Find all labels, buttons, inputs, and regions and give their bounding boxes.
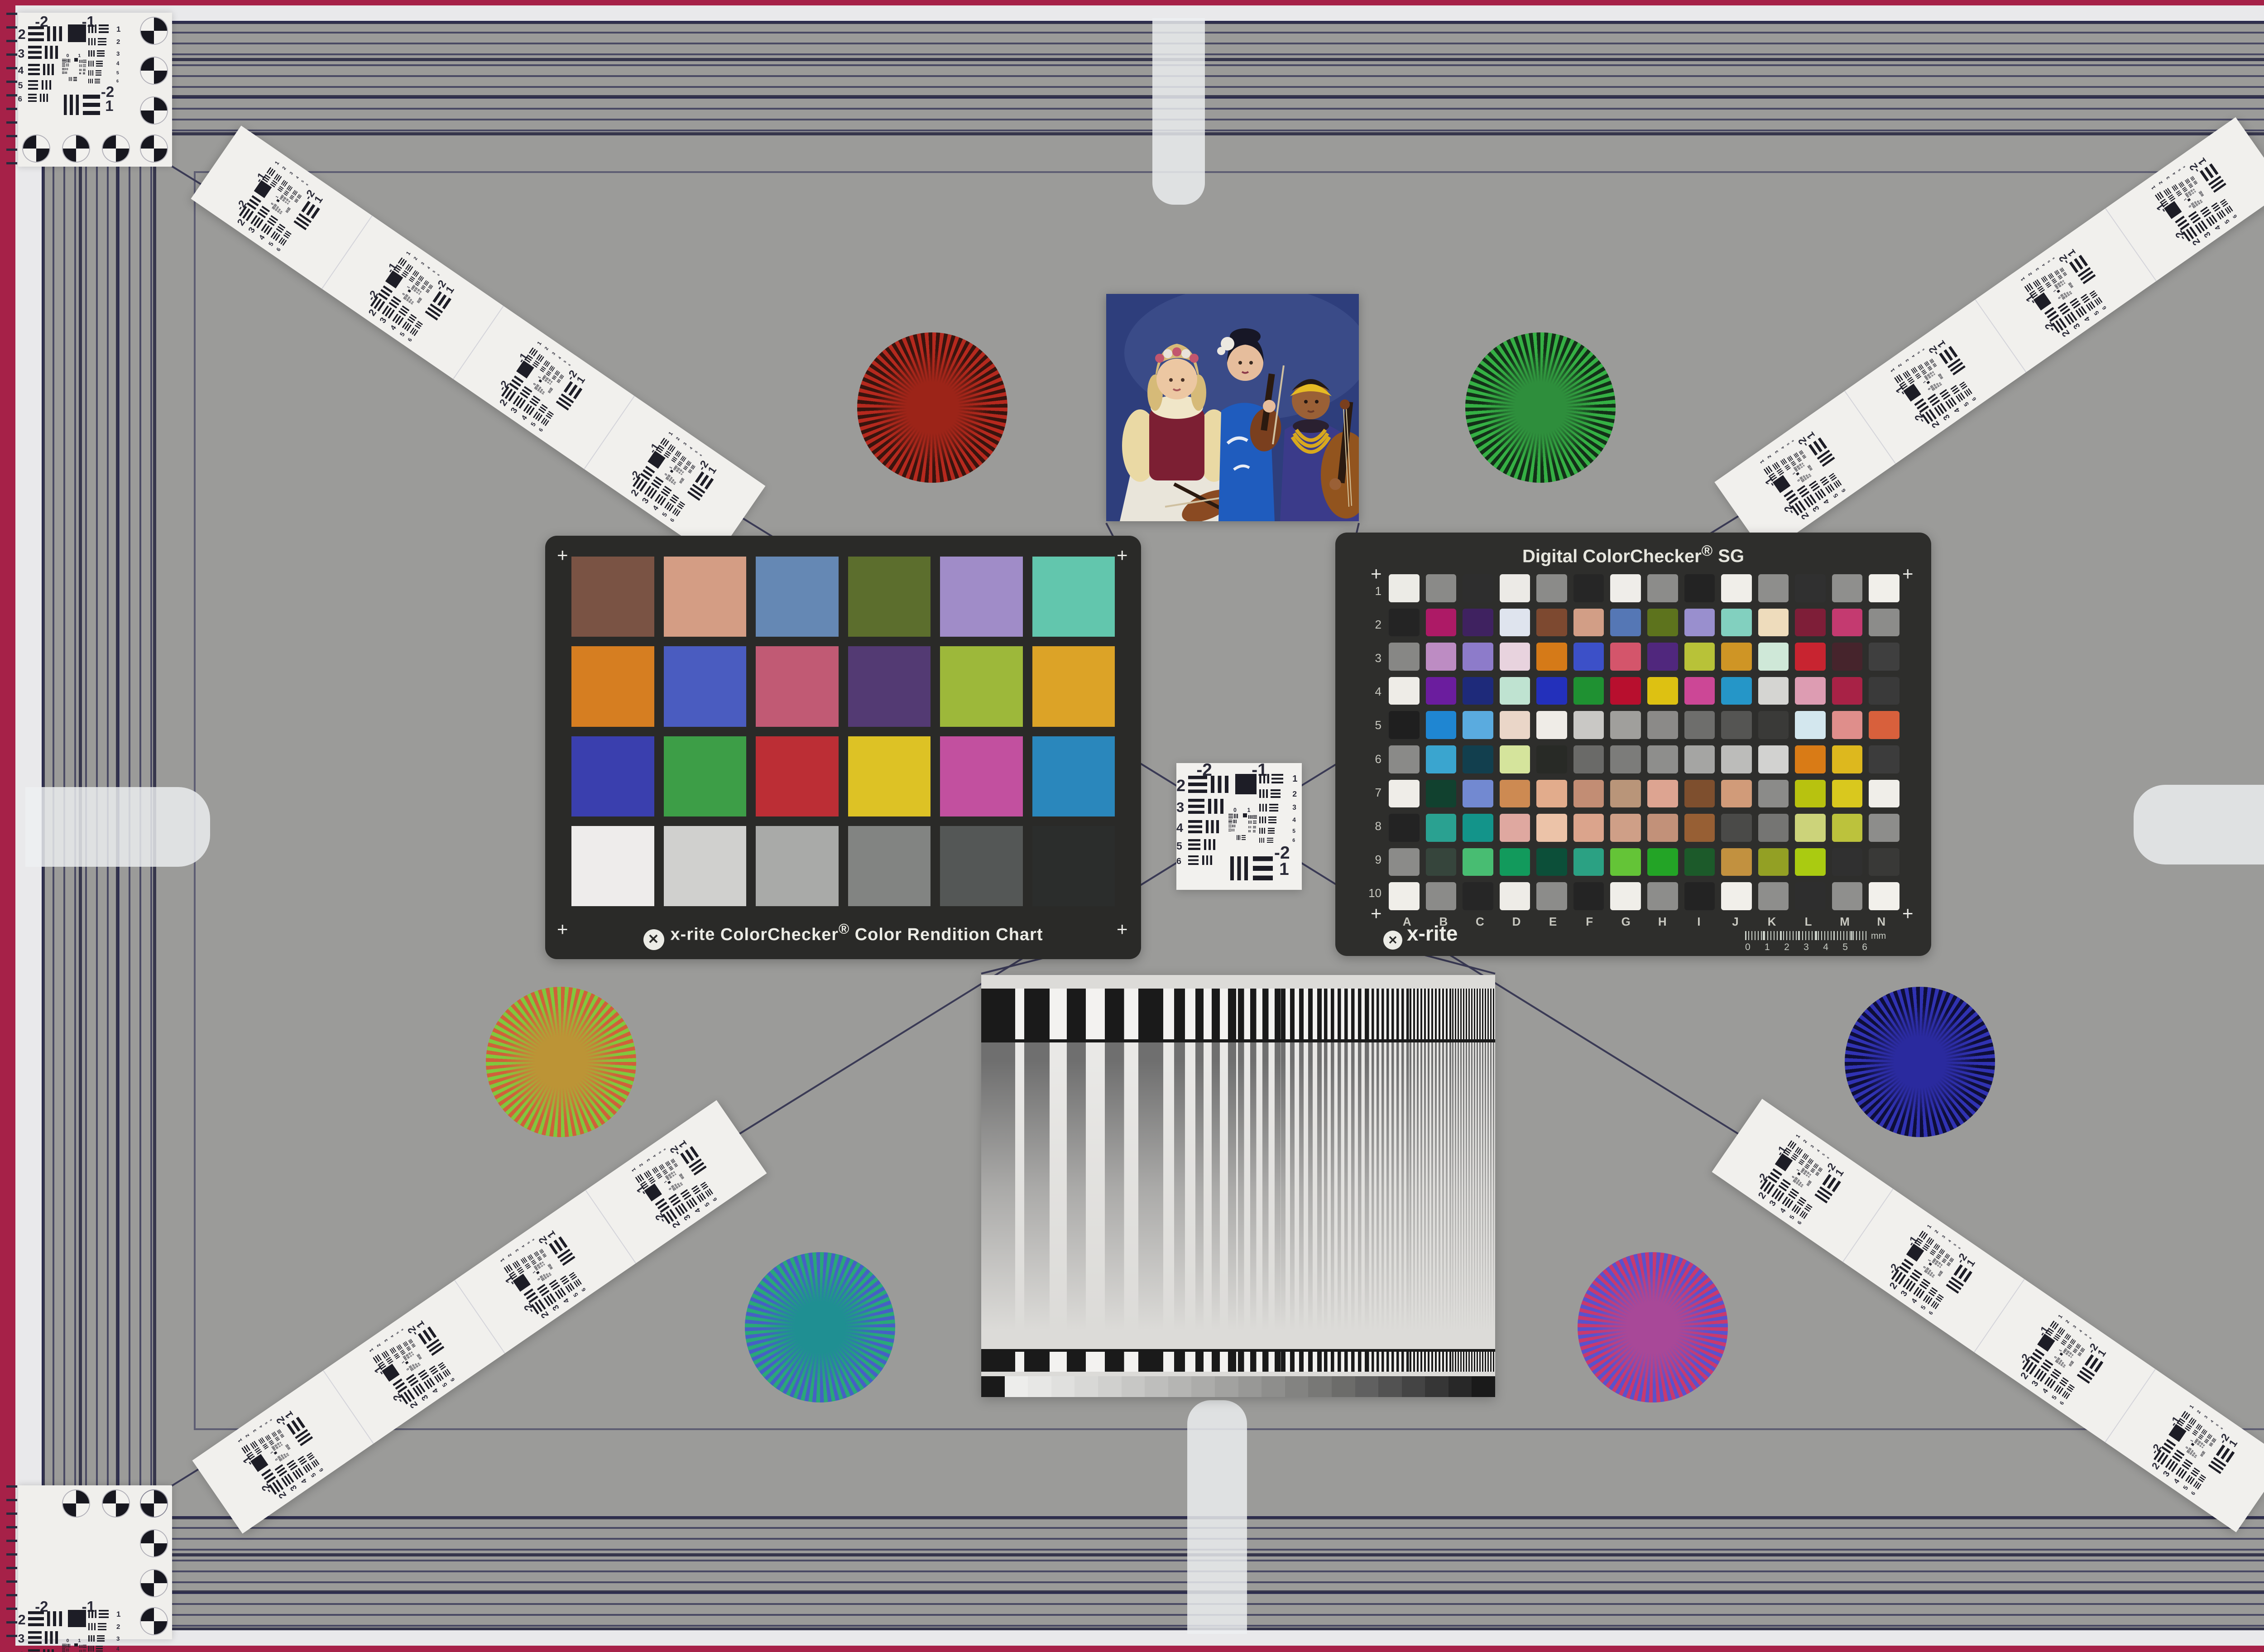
gray-step xyxy=(1238,1376,1262,1397)
usaf-bar-group xyxy=(1259,838,1265,843)
usaf-bar-group xyxy=(2211,1438,2216,1443)
usaf-bar-group xyxy=(538,404,548,413)
fiducial-circle-icon xyxy=(141,58,167,84)
usaf-label: 2 xyxy=(1803,1139,1808,1144)
gray-step xyxy=(1005,1376,1028,1397)
gray-step xyxy=(1285,1376,1309,1397)
usaf-bar-group xyxy=(551,381,552,383)
usaf-square xyxy=(1926,381,1929,384)
sg-patch xyxy=(1536,814,1567,842)
usaf-bar-group xyxy=(276,223,285,233)
usaf-bar-group xyxy=(1809,1173,1811,1176)
usaf-label: 1 xyxy=(1935,339,1947,350)
usaf-bar-group xyxy=(2190,190,2192,192)
usaf-label: 5 xyxy=(310,1472,317,1478)
usaf-bar-group xyxy=(1927,366,1932,371)
usaf-bar-group xyxy=(2178,182,2184,188)
usaf-label: 0 xyxy=(1927,387,1931,391)
sg-patch xyxy=(1684,848,1715,876)
usaf-bar-group xyxy=(28,1631,42,1644)
sg-patch xyxy=(1647,745,1678,773)
sg-row-label: 9 xyxy=(1359,843,1381,877)
usaf-label: 1 xyxy=(1292,774,1297,783)
usaf-bar-group xyxy=(1926,1237,1934,1245)
usaf-bar-group xyxy=(257,206,270,218)
usaf-bar-group xyxy=(1188,820,1202,833)
usaf-bar-group xyxy=(274,1464,287,1477)
usaf-bar-group xyxy=(266,167,275,176)
usaf-bar-group xyxy=(287,1454,289,1456)
usaf-square xyxy=(1775,1153,1793,1171)
usaf-bar-group xyxy=(2182,187,2188,192)
sg-patch xyxy=(1758,609,1789,637)
usaf-bar-group xyxy=(1228,814,1233,818)
sg-patch xyxy=(1573,643,1604,671)
sg-patch xyxy=(1610,745,1641,773)
sg-patch xyxy=(1426,711,1457,739)
usaf-bar-group xyxy=(283,190,289,196)
usaf-label: 6 xyxy=(2059,1400,2065,1406)
usaf-bar-group xyxy=(1903,1278,1916,1292)
usaf-label: 3 xyxy=(420,1393,430,1402)
sg-patch xyxy=(1610,780,1641,808)
usaf-bar-group xyxy=(438,1362,446,1370)
usaf-bar-group xyxy=(88,24,97,33)
sg-patch xyxy=(1721,711,1752,739)
usaf-bar-group xyxy=(532,360,540,368)
usaf-bar-group xyxy=(1929,1249,1936,1255)
usaf-bar-group xyxy=(286,199,288,201)
usaf-bar-group xyxy=(664,502,674,512)
usaf-label: 1 xyxy=(1759,459,1765,465)
sg-patch xyxy=(1647,848,1678,876)
sg-patch xyxy=(1869,574,1899,602)
usaf-bar-group xyxy=(541,418,549,427)
sg-patch xyxy=(1832,609,1863,637)
sg-patch xyxy=(1721,814,1752,842)
usaf-bar-group xyxy=(410,1352,412,1354)
usaf-label: 5 xyxy=(1962,401,1970,408)
usaf-bar-group xyxy=(1268,816,1276,823)
usaf-label: 1 xyxy=(631,1167,637,1173)
usaf-bar-group xyxy=(420,285,425,290)
usaf-bar-group xyxy=(98,1623,106,1630)
usaf-1951-center-target: -2-123456123456-2101 xyxy=(1176,763,1302,890)
usaf-bar-group xyxy=(392,314,403,325)
usaf-bar-group xyxy=(1208,799,1223,814)
usaf-bar-group xyxy=(1936,1254,1942,1260)
sg-patch xyxy=(1463,745,1493,773)
usaf-bar-group xyxy=(1937,385,1940,388)
gray-step xyxy=(1449,1376,1472,1397)
usaf-bar-group xyxy=(1937,1264,1939,1267)
usaf-bar-group xyxy=(2072,1348,2077,1353)
cc24-patch xyxy=(1032,646,1115,726)
usaf-label: 4 xyxy=(520,414,528,422)
usaf-bar-group xyxy=(1271,789,1281,798)
usaf-bar-group xyxy=(1934,1263,1937,1265)
usaf-bar-group xyxy=(429,1365,438,1375)
usaf-bar-group xyxy=(410,1355,412,1357)
usaf-label: 4 xyxy=(1953,407,1961,414)
usaf-bar-group xyxy=(47,1611,62,1626)
sg-patch xyxy=(1389,745,1420,773)
sg-patch xyxy=(1721,643,1752,671)
ruler-number: 4 xyxy=(1823,942,1828,953)
usaf-label: 1 xyxy=(444,284,456,295)
usaf-bar-group xyxy=(2172,1450,2185,1462)
usaf-bar-group xyxy=(28,1611,44,1626)
usaf-bar-group xyxy=(513,1261,520,1269)
usaf-bar-group xyxy=(559,375,564,379)
sg-patch xyxy=(1536,711,1567,739)
sg-col-label: M xyxy=(1827,915,1863,930)
usaf-bar-group xyxy=(1939,1249,1945,1255)
usaf-label: 6 xyxy=(2190,1490,2197,1496)
siemens-star-core xyxy=(745,1252,895,1402)
usaf-label: 1 xyxy=(2183,198,2187,202)
usaf-label: 1 xyxy=(706,465,719,475)
sg-row-label: 5 xyxy=(1359,709,1381,742)
usaf-label: 1 xyxy=(2058,1349,2063,1352)
siemens-star-core xyxy=(857,332,1007,483)
usaf-label: 3 xyxy=(2203,230,2212,239)
usaf-label: 3 xyxy=(18,1633,25,1644)
usaf-bar-group xyxy=(97,50,105,57)
corner-ruler-ticks xyxy=(6,13,17,167)
usaf-label: 4 xyxy=(1781,446,1785,450)
usaf-bar-group xyxy=(265,1435,271,1441)
usaf-label: 5 xyxy=(2216,1424,2219,1427)
gray-step xyxy=(1402,1376,1425,1397)
usaf-label: 3 xyxy=(683,442,688,447)
usaf-bar-group xyxy=(28,80,38,90)
sg-patch xyxy=(1610,609,1641,637)
usaf-bar-group xyxy=(2182,1459,2192,1470)
usaf-bar-group xyxy=(45,1631,58,1644)
usaf-label: 4 xyxy=(1910,1297,1918,1305)
sg-patch xyxy=(1647,882,1678,910)
usaf-square xyxy=(2057,289,2060,293)
usaf-bar-group xyxy=(659,1164,665,1170)
usaf-bar-group xyxy=(88,79,93,83)
sg-patch xyxy=(1573,882,1604,910)
usaf-bar-group xyxy=(2041,276,2048,283)
usaf-bar-group xyxy=(565,1283,575,1293)
usaf-bar-group xyxy=(1228,825,1232,828)
usaf-bar-group xyxy=(1248,826,1251,829)
usaf-label: 3 xyxy=(1811,504,1821,513)
sg-patch xyxy=(1832,677,1863,705)
sg-patch xyxy=(1758,677,1789,705)
usaf-bar-group xyxy=(79,64,82,67)
usaf-bar-group xyxy=(277,1429,282,1434)
usaf-square xyxy=(2060,1353,2063,1356)
usaf-bar-group xyxy=(2216,210,2226,220)
usaf-square xyxy=(74,1643,78,1647)
usaf-label: 2 xyxy=(376,1343,382,1348)
usaf-bar-group xyxy=(1228,829,1231,831)
sg-patch xyxy=(1610,643,1641,671)
usaf-label: 6 xyxy=(2183,165,2186,168)
usaf-bar-group xyxy=(1815,1172,1820,1176)
usaf-bar-group xyxy=(99,1610,109,1618)
usaf-label: 3 xyxy=(552,351,556,356)
usaf-bar-group xyxy=(543,1263,545,1265)
cc24-patch-grid xyxy=(571,557,1115,906)
usaf-bar-group xyxy=(406,1346,411,1351)
usaf-label: 5 xyxy=(563,360,567,364)
usaf-bar-group xyxy=(1807,476,1809,479)
sg-patch xyxy=(1426,882,1457,910)
usaf-bar-group xyxy=(417,289,420,291)
usaf-bar-group xyxy=(279,1458,283,1461)
usaf-bar-group xyxy=(1923,1294,1933,1304)
sg-patch xyxy=(1869,882,1899,910)
cc24-patch xyxy=(1032,826,1115,906)
sg-patch xyxy=(1869,711,1899,739)
sg-col-label: H xyxy=(1644,915,1681,930)
usaf-bar-group xyxy=(1808,1158,1813,1165)
gray-step xyxy=(1472,1376,1495,1397)
usaf-bar-group xyxy=(2181,1411,2190,1420)
usaf-label: 1 xyxy=(2150,185,2157,191)
usaf-bar-group xyxy=(1813,1163,1818,1168)
usaf-label: 5 xyxy=(1786,442,1790,446)
usaf-label: 1 xyxy=(2227,1438,2240,1449)
usaf-bar-group xyxy=(1938,1262,1941,1264)
usaf-bar-group xyxy=(2188,211,2201,224)
sg-patch xyxy=(1869,780,1899,808)
bar-sweep-segment xyxy=(1195,1352,1238,1372)
usaf-label: 5 xyxy=(441,1382,448,1388)
gray-step xyxy=(1074,1376,1098,1397)
usaf-1951-corner-target: -2-123456123456-2101 xyxy=(18,15,125,122)
sg-patch xyxy=(1536,677,1567,705)
usaf-bar-group xyxy=(2220,199,2228,207)
sg-patch xyxy=(1500,574,1530,602)
usaf-bar-group xyxy=(1778,1179,1791,1191)
usaf-bar-group xyxy=(549,383,551,385)
usaf-bar-group xyxy=(1927,394,1940,406)
usaf-bar-group xyxy=(1242,835,1246,840)
fiducial-circle-icon xyxy=(63,1490,89,1517)
usaf-label: 3 xyxy=(18,48,25,59)
usaf-label: 2 xyxy=(508,1253,513,1258)
usaf-label: 6 xyxy=(2089,1337,2092,1340)
usaf-bar-group xyxy=(1782,1197,1793,1208)
sg-patch xyxy=(1573,609,1604,637)
usaf-bar-group xyxy=(261,224,272,235)
usaf-label: 4 xyxy=(2172,172,2176,176)
usaf-label: 6 xyxy=(1827,1157,1830,1160)
usaf-bar-group xyxy=(2197,1443,2199,1445)
usaf-bar-group xyxy=(2202,1446,2203,1448)
sg-patch xyxy=(1795,780,1826,808)
sg-patch xyxy=(1795,643,1826,671)
usaf-bar-group xyxy=(1791,1153,1798,1161)
usaf-bar-group xyxy=(1911,367,1918,375)
usaf-bar-group xyxy=(675,451,681,458)
usaf-bar-group xyxy=(1933,1243,1940,1250)
usaf-bar-group xyxy=(1791,461,1797,466)
usaf-label: 4 xyxy=(521,1244,525,1249)
sg-patch xyxy=(1536,848,1567,876)
usaf-bar-group xyxy=(2058,1327,2065,1335)
usaf-label: 5 xyxy=(18,82,23,91)
gray-step xyxy=(1332,1376,1355,1397)
usaf-bar-group xyxy=(2185,178,2190,184)
usaf-bar-group xyxy=(1946,1262,1951,1266)
usaf-bar-group xyxy=(2064,1334,2071,1341)
usaf-bar-group xyxy=(1913,1287,1924,1298)
usaf-bar-group xyxy=(2198,1434,2204,1440)
usaf-bar-group xyxy=(552,375,556,380)
usaf-label: 1 xyxy=(669,466,673,470)
usaf-bar-group xyxy=(73,77,77,81)
usaf-label: 1 xyxy=(401,1361,405,1364)
usaf-square xyxy=(68,24,86,42)
usaf-label: 1 xyxy=(2020,276,2026,282)
usaf-bar-group xyxy=(2072,1354,2073,1356)
usaf-label: 4 xyxy=(427,266,431,270)
usaf-bar-group xyxy=(1933,363,1937,368)
usaf-bar-group xyxy=(398,257,407,266)
usaf-bar-group xyxy=(425,288,430,293)
usaf-label: 1 xyxy=(405,250,412,256)
usaf-label: 2 xyxy=(282,166,287,171)
usaf-bar-group xyxy=(406,1374,418,1387)
bar-sweep-segment xyxy=(1024,989,1067,1039)
usaf-label: 1 xyxy=(78,53,81,58)
sg-patch xyxy=(1684,780,1715,808)
usaf-bar-group xyxy=(671,1159,675,1164)
usaf-bar-group xyxy=(644,486,657,499)
usaf-label: 1 xyxy=(270,1451,274,1455)
sg-col-label: G xyxy=(1607,915,1644,930)
usaf-bar-group xyxy=(2199,1445,2202,1447)
digital-colorchecker-sg-chart: Digital ColorChecker®SG 12345678910 ABCD… xyxy=(1335,533,1931,956)
usaf-bar-group xyxy=(2193,1481,2202,1490)
sg-row-labels: 12345678910 xyxy=(1359,574,1381,910)
usaf-bar-group xyxy=(1825,484,1835,494)
usaf-label: 5 xyxy=(398,331,406,337)
cc24-patch xyxy=(1032,736,1115,816)
usaf-bar-group xyxy=(297,194,301,199)
camera-test-chart-scene: -2-123456123456-2101-2-123456123456-2101… xyxy=(0,0,2264,1652)
crosshair-mark: + xyxy=(1117,546,1128,565)
usaf-bar-group xyxy=(509,375,524,390)
usaf-bar-group xyxy=(683,465,688,470)
sg-patch xyxy=(1389,780,1420,808)
sg-patch xyxy=(1573,780,1604,808)
sg-patch xyxy=(1684,643,1715,671)
usaf-bar-group xyxy=(2059,285,2062,288)
sg-patch xyxy=(1758,848,1789,876)
siemens-star-red-blue xyxy=(1578,1252,1728,1402)
usaf-bar-group xyxy=(691,465,695,470)
usaf-bar-group xyxy=(673,1171,675,1173)
usaf-bar-group xyxy=(96,1646,103,1652)
usaf-bar-group xyxy=(525,1263,531,1269)
cc24-patch xyxy=(664,646,747,726)
bar-sweep-segment xyxy=(1024,1352,1067,1372)
usaf-bar-group xyxy=(1259,804,1267,812)
usaf-label: 1 xyxy=(677,1138,689,1149)
sg-patch xyxy=(1389,643,1420,671)
ruler-ticks xyxy=(1745,931,1867,940)
usaf-label: 6 xyxy=(663,1148,667,1151)
usaf-bar-group xyxy=(281,1444,283,1446)
usaf-label: 5 xyxy=(661,511,668,518)
usaf-label: 1 xyxy=(1922,380,1926,384)
cc24-patch xyxy=(571,557,654,637)
usaf-bar-group xyxy=(665,1161,671,1167)
sg-patch xyxy=(1573,814,1604,842)
usaf-bar-group xyxy=(1804,1204,1813,1212)
usaf-bar-group xyxy=(62,1648,65,1652)
usaf-bar-group xyxy=(283,231,292,239)
sg-patch xyxy=(1832,711,1863,739)
usaf-bar-group xyxy=(67,59,70,62)
sg-patch xyxy=(1573,711,1604,739)
sg-col-label: N xyxy=(1863,915,1899,930)
sg-patch xyxy=(1426,780,1457,808)
usaf-bar-group xyxy=(1955,393,1965,403)
usaf-label: 1 xyxy=(2053,289,2057,293)
usaf-label: 6 xyxy=(1928,1310,1934,1316)
usaf-bar-group xyxy=(686,1197,698,1209)
usaf-bar-group xyxy=(416,1365,418,1368)
usaf-bar-group xyxy=(434,1373,444,1383)
usaf-bar-group xyxy=(62,63,65,67)
usaf-bar-group xyxy=(2054,1384,2064,1394)
usaf-bar-group xyxy=(410,327,418,336)
usaf-label: 3 xyxy=(116,1636,120,1642)
usaf-bar-group xyxy=(530,396,541,407)
usaf-bar-group xyxy=(281,180,288,187)
fiducial-circle-icon xyxy=(141,1608,167,1634)
usaf-bar-group xyxy=(293,1468,304,1479)
usaf-bar-group xyxy=(88,70,93,75)
sg-patch xyxy=(1463,882,1493,910)
sg-row-label: 8 xyxy=(1359,809,1381,843)
usaf-label: 3 xyxy=(646,1158,651,1162)
gray-step xyxy=(1051,1376,1075,1397)
usaf-bar-group xyxy=(1237,835,1240,840)
usaf-bar-group xyxy=(43,1649,54,1652)
usaf-bar-group xyxy=(651,476,664,489)
usaf-bar-group xyxy=(88,1623,96,1630)
usaf-bar-group xyxy=(1253,815,1257,819)
usaf-label: 6 xyxy=(270,1418,273,1421)
usaf-label: 1 xyxy=(368,1347,374,1353)
usaf-label: 3 xyxy=(2035,267,2040,271)
usaf-bar-group xyxy=(1903,371,1910,379)
usaf-bar-group xyxy=(1211,776,1228,793)
usaf-bar-group xyxy=(542,1253,547,1258)
cc24-patch xyxy=(571,646,654,726)
usaf-bar-group xyxy=(1232,825,1235,828)
usaf-label: 6 xyxy=(1922,348,1925,351)
usaf-bar-group xyxy=(538,1266,541,1269)
usaf-bar-group xyxy=(668,1166,673,1171)
usaf-bar-group xyxy=(1922,1244,1929,1251)
bar-sweep-segment xyxy=(1452,989,1495,1039)
ruler-number: 3 xyxy=(1804,942,1809,953)
usaf-bar-group xyxy=(2053,1334,2061,1341)
usaf-bar-group xyxy=(549,1266,553,1270)
